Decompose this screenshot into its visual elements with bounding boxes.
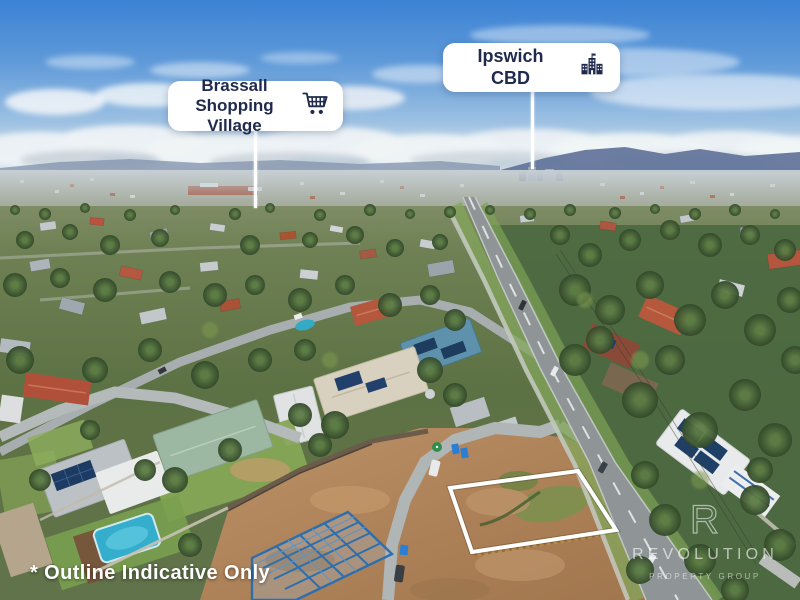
callout-line2: CBD [443,68,578,89]
watermark-brand: REVOLUTION [612,546,798,564]
city-buildings-icon [578,51,608,84]
callout-line2: Shopping Village [168,96,301,136]
outline-disclaimer: * Outline Indicative Only [30,562,270,585]
svg-text:R: R [690,498,718,539]
aerial-photo [0,0,800,600]
callout-ipswich-cbd: Ipswich CBD [443,43,620,92]
ipswich-pointer-line [531,91,534,169]
shopping-cart-icon [301,90,331,123]
brassall-pointer-line [254,130,257,208]
sky [0,0,800,178]
revolution-logo-mark: R [688,497,718,539]
callout-brassall-shopping-village: Brassall Shopping Village [168,81,343,131]
callout-line1: Ipswich [443,46,578,67]
aerial-listing-photo: Brassall Shopping Village Ipswich CBD [0,0,800,600]
watermark-tagline: PROPERTY GROUP [640,572,770,581]
callout-line1: Brassall [168,76,301,96]
